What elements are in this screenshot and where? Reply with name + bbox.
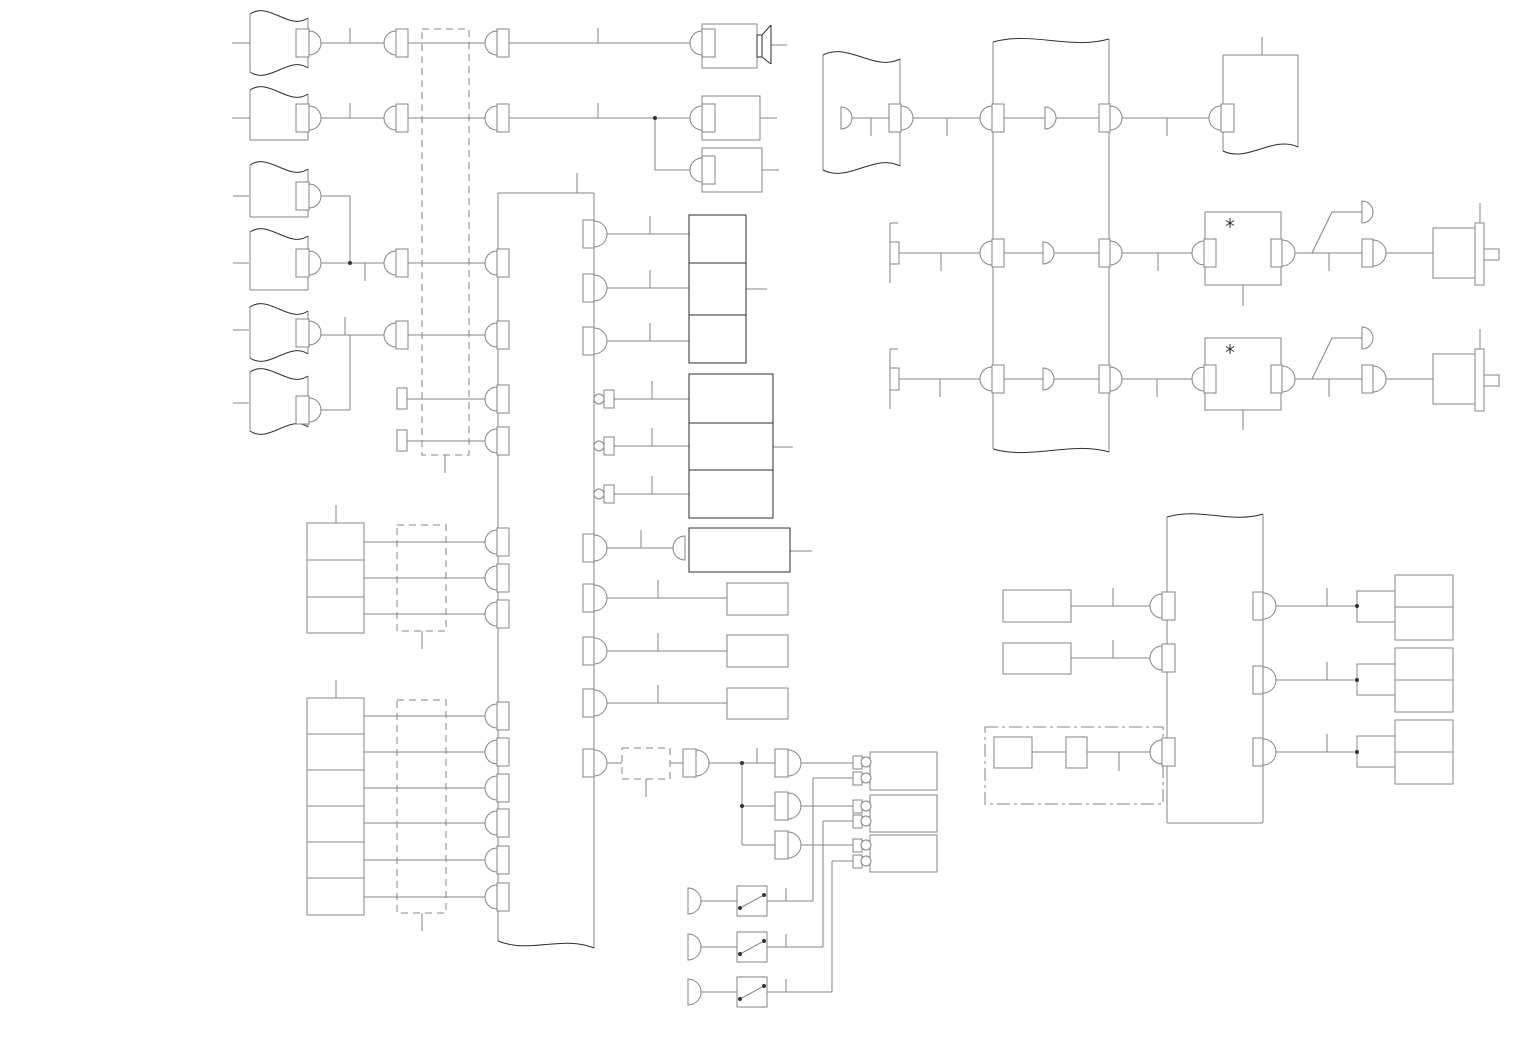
connector-pin-icon	[485, 323, 497, 347]
connector-pin-icon	[980, 106, 992, 130]
component-box-dark	[689, 215, 746, 363]
junction-dot	[1355, 750, 1359, 754]
connector-pin-icon	[384, 251, 396, 275]
socket-circle-icon	[594, 394, 604, 404]
component-box	[702, 104, 715, 132]
component-box	[1099, 104, 1110, 132]
component-box	[1253, 666, 1263, 694]
component-box	[296, 249, 309, 277]
wiring-diagram	[0, 0, 1536, 1043]
connector-pin-icon	[690, 158, 702, 182]
connector-pin-icon	[1110, 241, 1122, 265]
connector-pin-icon	[485, 251, 497, 275]
connector-pin-icon	[1263, 593, 1276, 619]
wire	[1312, 338, 1332, 379]
component-box	[1003, 643, 1071, 674]
cable-break-wave	[993, 448, 1109, 452]
component-box	[1204, 365, 1216, 393]
connector-pin-icon	[309, 184, 321, 208]
component-box	[604, 485, 614, 503]
component-box	[497, 564, 509, 592]
connector-pin-icon	[384, 31, 396, 55]
connector-pin-icon	[1263, 739, 1276, 765]
component-box	[604, 390, 614, 408]
component-box	[1271, 239, 1282, 267]
component-box	[497, 846, 509, 874]
component-box	[497, 774, 509, 802]
connector-pin-icon	[594, 690, 607, 716]
component-box	[1221, 104, 1234, 132]
component-box	[1357, 591, 1395, 622]
connector-pin-icon	[788, 832, 801, 858]
connector-pin-icon	[1263, 667, 1276, 693]
component-box	[702, 156, 715, 184]
junction-dot	[738, 952, 742, 956]
connector-pin-icon	[1192, 367, 1204, 391]
socket-circle-icon	[594, 441, 604, 451]
component-box	[397, 388, 407, 409]
socket-circle-icon	[861, 856, 871, 866]
component-box	[889, 104, 901, 132]
connector-pin-icon	[594, 535, 607, 561]
connector-pin-icon	[1362, 327, 1373, 349]
component-box	[775, 749, 788, 777]
component-box	[497, 883, 509, 911]
component-box	[497, 528, 509, 556]
component-box	[992, 104, 1004, 132]
connector-pin-icon	[980, 367, 992, 391]
component-box	[870, 795, 937, 832]
socket-circle-icon	[861, 773, 871, 783]
component-box	[1484, 375, 1499, 386]
component-box	[307, 523, 364, 633]
socket-circle-icon	[861, 816, 871, 826]
connector-pin-icon	[1110, 367, 1122, 391]
cable-break-wave	[250, 65, 308, 76]
component-box	[1475, 223, 1484, 285]
connector-pin-icon	[841, 107, 852, 129]
component-box	[583, 637, 594, 665]
component-box	[497, 29, 509, 57]
cable-break-wave	[250, 424, 308, 435]
connector-pin-icon	[1282, 240, 1295, 266]
component-box	[583, 327, 594, 355]
connector-pin-icon	[1043, 242, 1054, 264]
component-box-dark	[757, 35, 762, 57]
component-box	[890, 242, 899, 264]
connector-pin-icon	[384, 323, 396, 347]
connector-pin-icon	[673, 536, 685, 560]
component-box	[1003, 590, 1071, 622]
component-box	[870, 752, 937, 790]
component-box	[1357, 736, 1395, 767]
connector-pin-icon	[1150, 740, 1162, 764]
component-box-dark	[689, 374, 773, 518]
component-box	[497, 385, 509, 413]
connector-pin-icon	[485, 106, 497, 130]
component-box	[1204, 239, 1216, 267]
component-box	[497, 427, 509, 455]
connector-pin-icon	[485, 885, 497, 909]
connector-pin-icon	[696, 750, 709, 776]
component-box	[1162, 738, 1175, 766]
cable-break-wave	[250, 11, 308, 22]
component-box	[1362, 239, 1373, 267]
component-box	[1362, 365, 1373, 393]
connector-pin-icon	[688, 934, 701, 960]
component-box	[1162, 592, 1175, 620]
component-box	[1066, 737, 1087, 768]
connector-pin-icon	[485, 602, 497, 626]
component-box	[296, 319, 309, 347]
connector-pin-icon	[485, 530, 497, 554]
component-box	[296, 396, 309, 424]
connector-pin-icon	[1362, 201, 1373, 223]
component-box	[992, 239, 1004, 267]
component-box	[1099, 365, 1110, 393]
component-box	[775, 792, 788, 820]
connector-pin-icon	[485, 776, 497, 800]
component-box	[727, 583, 788, 615]
component-box	[1475, 349, 1484, 411]
socket-circle-icon	[861, 801, 871, 811]
component-box	[397, 430, 407, 451]
cable-break-wave	[993, 38, 1109, 42]
connector-pin-icon	[485, 704, 497, 728]
connector-pin-icon	[1045, 107, 1056, 129]
wire	[1312, 212, 1332, 253]
junction-dot	[1355, 678, 1359, 682]
component-box	[497, 104, 509, 132]
junction-dot	[740, 804, 744, 808]
component-box	[683, 749, 696, 777]
component-box	[396, 321, 408, 349]
connector-pin-icon	[788, 750, 801, 776]
component-box	[1253, 592, 1263, 620]
component-box	[702, 29, 715, 57]
connector-pin-icon	[309, 31, 321, 55]
shield-dashed-outline	[397, 700, 446, 913]
connector-pin-icon	[1150, 646, 1162, 670]
connector-pin-icon	[1209, 106, 1221, 130]
junction-dot	[653, 116, 657, 120]
component-box	[1357, 664, 1395, 695]
component-box	[604, 437, 614, 455]
connector-pin-icon	[690, 106, 702, 130]
junction-dot	[348, 261, 352, 265]
cable-break-wave	[1223, 144, 1298, 154]
connector-pin-icon	[384, 106, 396, 130]
component-box	[396, 249, 408, 277]
component-box	[1433, 354, 1475, 404]
cable-break-wave	[250, 369, 308, 380]
cable-break-wave	[823, 52, 900, 63]
component-box	[497, 249, 509, 277]
connector-pin-icon	[980, 241, 992, 265]
junction-dot	[762, 984, 766, 988]
component-box	[1253, 738, 1263, 766]
component-box	[992, 365, 1004, 393]
connector-pin-icon	[594, 275, 607, 301]
component-box	[497, 321, 509, 349]
connector-pin-icon	[485, 31, 497, 55]
cable-break-wave	[1167, 514, 1263, 518]
connector-pin-icon	[788, 793, 801, 819]
junction-dot	[1355, 604, 1359, 608]
component-box	[396, 29, 408, 57]
connector-pin-icon	[594, 585, 607, 611]
cable-break-wave	[498, 941, 594, 948]
connector-pin-icon	[690, 31, 702, 55]
component-box	[497, 600, 509, 628]
component-box	[296, 29, 309, 57]
junction-dot	[762, 939, 766, 943]
horn-line	[762, 57, 771, 64]
connector-pin-icon	[309, 106, 321, 130]
connector-pin-icon	[309, 398, 321, 422]
connector-pin-icon	[594, 750, 607, 776]
connector-pin-icon	[309, 321, 321, 345]
component-box	[727, 635, 788, 667]
connector-pin-icon	[594, 328, 607, 354]
component-box	[1484, 249, 1499, 260]
connector-pin-icon	[485, 740, 497, 764]
connector-pin-icon	[1282, 366, 1295, 392]
connector-pin-icon	[1110, 106, 1122, 130]
connector-pin-icon	[594, 221, 607, 247]
junction-dot	[738, 997, 742, 1001]
component-box	[727, 688, 788, 719]
connector-pin-icon	[485, 848, 497, 872]
cable-break-wave	[823, 163, 900, 174]
connector-pin-icon	[485, 566, 497, 590]
connector-pin-icon	[309, 251, 321, 275]
component-box	[1271, 365, 1282, 393]
junction-dot	[738, 906, 742, 910]
component-box-dark	[689, 528, 790, 572]
shield-dashed-outline	[622, 748, 670, 779]
cad-canvas	[0, 0, 1536, 1043]
cable-break-wave	[250, 351, 308, 362]
connector-pin-icon	[485, 811, 497, 835]
connector-pin-icon	[1150, 594, 1162, 618]
connector-pin-icon	[1373, 240, 1386, 266]
component-box	[583, 220, 594, 248]
component-box	[1162, 644, 1175, 672]
cable-break-wave	[250, 229, 308, 240]
component-box	[296, 182, 309, 210]
connector-pin-icon	[1192, 241, 1204, 265]
connector-pin-icon	[688, 888, 701, 914]
component-box	[497, 702, 509, 730]
component-box	[396, 104, 408, 132]
component-box	[775, 831, 788, 859]
component-box	[583, 749, 594, 777]
component-box	[994, 737, 1032, 768]
connector-pin-icon	[485, 429, 497, 453]
connector-pin-icon	[901, 106, 913, 130]
component-box	[296, 104, 309, 132]
cable-break-wave	[250, 304, 308, 315]
socket-circle-icon	[594, 489, 604, 499]
component-box	[497, 738, 509, 766]
cable-break-wave	[250, 87, 308, 98]
component-box	[497, 809, 509, 837]
connector-pin-icon	[485, 387, 497, 411]
component-box	[890, 368, 899, 390]
component-box	[583, 534, 594, 562]
component-box	[1433, 228, 1475, 278]
connector-pin-icon	[1373, 366, 1386, 392]
component-box	[1099, 239, 1110, 267]
component-box	[583, 274, 594, 302]
component-box	[583, 584, 594, 612]
component-box	[583, 689, 594, 717]
socket-circle-icon	[861, 757, 871, 767]
shield-dashed-outline	[422, 29, 469, 455]
junction-dot	[740, 761, 744, 765]
horn-line	[762, 25, 771, 35]
socket-circle-icon	[861, 840, 871, 850]
cable-break-wave	[250, 162, 308, 173]
junction-dot	[762, 893, 766, 897]
connector-pin-icon	[688, 979, 701, 1005]
component-box	[870, 835, 937, 872]
connector-pin-icon	[1043, 368, 1054, 390]
connector-pin-icon	[594, 638, 607, 664]
